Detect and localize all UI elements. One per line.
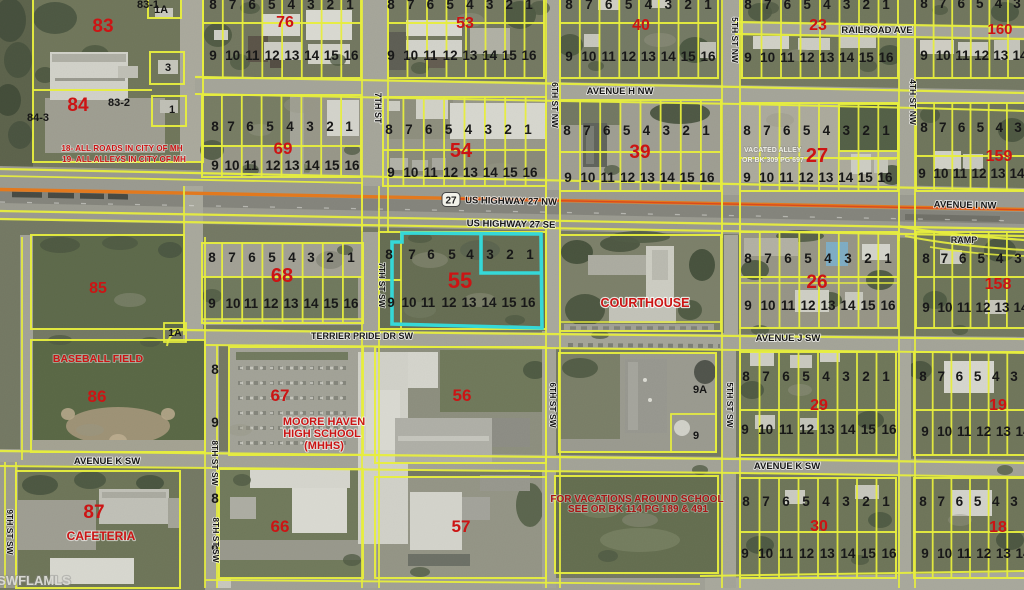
svg-text:910111213141516: 910111213141516 — [741, 546, 897, 561]
svg-text:55: 55 — [448, 268, 472, 293]
svg-text:7TH ST SW: 7TH ST SW — [377, 262, 387, 308]
svg-text:910111213141516: 910111213141516 — [211, 158, 360, 173]
svg-text:1A: 1A — [168, 327, 182, 339]
svg-text:8: 8 — [211, 491, 219, 506]
svg-text:910111213141516: 910111213141516 — [743, 170, 893, 185]
svg-text:84-3: 84-3 — [27, 112, 49, 124]
svg-text:OR BK 309 PG 697: OR BK 309 PG 697 — [742, 157, 804, 164]
svg-text:83-2: 83-2 — [108, 97, 130, 109]
svg-text:83: 83 — [92, 16, 113, 37]
svg-text:68: 68 — [271, 265, 293, 287]
svg-text:4TH ST NW: 4TH ST NW — [908, 79, 918, 126]
svg-text:(MHHS): (MHHS) — [304, 440, 344, 452]
svg-text:AVENUE J SW: AVENUE J SW — [756, 333, 821, 344]
svg-text:910111213141516: 910111213141516 — [209, 48, 359, 63]
svg-text:6TH ST SW: 6TH ST SW — [548, 382, 558, 428]
svg-text:8TH ST SW: 8TH ST SW — [210, 440, 220, 486]
svg-text:VACATED ALLEY: VACATED ALLEY — [744, 147, 802, 154]
svg-text:MOORE HAVEN: MOORE HAVEN — [283, 416, 365, 428]
svg-text:86: 86 — [88, 387, 107, 406]
svg-text:RAMP: RAMP — [951, 235, 978, 245]
svg-text:910111213141516: 910111213141516 — [208, 296, 359, 311]
svg-text:53: 53 — [456, 15, 474, 32]
svg-text:158: 158 — [985, 276, 1012, 293]
svg-text:AVENUE I NW: AVENUE I NW — [934, 199, 997, 211]
svg-text:AVENUE K SW: AVENUE K SW — [74, 456, 140, 467]
svg-text:COURTHOUSE: COURTHOUSE — [601, 296, 690, 310]
svg-text:56: 56 — [453, 386, 472, 405]
svg-text:CAFETERIA: CAFETERIA — [67, 529, 136, 543]
svg-text:TERRIER PRIDE DR SW: TERRIER PRIDE DR SW — [311, 331, 414, 341]
svg-text:9: 9 — [211, 415, 219, 430]
svg-text:39: 39 — [629, 142, 650, 163]
svg-text:84: 84 — [67, 95, 89, 116]
svg-text:159: 159 — [986, 148, 1013, 165]
svg-text:85: 85 — [89, 280, 107, 297]
svg-text:26: 26 — [806, 272, 827, 293]
svg-text:40: 40 — [632, 17, 650, 34]
svg-text:910111213141516: 910111213141516 — [564, 170, 715, 185]
svg-text:910111213141516: 910111213141516 — [387, 165, 538, 180]
svg-text:1A: 1A — [154, 4, 168, 16]
svg-text:23: 23 — [809, 17, 827, 34]
svg-text:76: 76 — [276, 14, 294, 31]
svg-text:9: 9 — [693, 430, 699, 442]
svg-text:57: 57 — [452, 517, 471, 536]
svg-text:18- ALL ROADS IN CITY OF MH: 18- ALL ROADS IN CITY OF MH — [61, 144, 182, 153]
svg-text:66: 66 — [271, 517, 290, 536]
svg-text:6TH ST NW: 6TH ST NW — [550, 82, 560, 129]
svg-text:910111213141516: 910111213141516 — [741, 422, 897, 437]
svg-text:9TH ST SW: 9TH ST SW — [5, 509, 15, 555]
svg-text:3: 3 — [165, 62, 171, 74]
svg-text:5TH ST NW: 5TH ST NW — [730, 17, 740, 64]
svg-text:AVENUE K SW: AVENUE K SW — [754, 461, 820, 472]
svg-text:5TH ST SW: 5TH ST SW — [725, 382, 735, 428]
svg-text:19- ALL ALLEYS IN CITY OF MH: 19- ALL ALLEYS IN CITY OF MH — [62, 155, 186, 164]
svg-text:US HIGHWAY 27 NW: US HIGHWAY 27 NW — [465, 195, 557, 208]
svg-text:27: 27 — [445, 196, 457, 207]
svg-text:7TH ST: 7TH ST — [373, 92, 383, 124]
svg-text:54: 54 — [450, 140, 473, 162]
svg-text:8: 8 — [211, 362, 219, 377]
svg-text:910111213141516: 910111213141516 — [387, 48, 537, 63]
svg-text:AVENUE H NW: AVENUE H NW — [587, 86, 654, 97]
svg-text:30: 30 — [810, 518, 828, 535]
svg-text:RAILROAD AVE: RAILROAD AVE — [841, 25, 912, 36]
svg-text:29: 29 — [810, 397, 828, 414]
svg-text:67: 67 — [271, 386, 290, 405]
svg-text:US HIGHWAY 27 SE: US HIGHWAY 27 SE — [467, 218, 556, 231]
svg-text:910111213141516: 910111213141516 — [744, 50, 894, 65]
svg-text:SEE OR BK 114 PG 189 & 491: SEE OR BK 114 PG 189 & 491 — [568, 504, 709, 515]
svg-text:910111213141516: 910111213141516 — [565, 49, 716, 64]
svg-text:69: 69 — [274, 139, 293, 158]
svg-text:160: 160 — [987, 21, 1012, 38]
svg-text:87: 87 — [83, 502, 104, 523]
svg-text:9A: 9A — [693, 384, 707, 396]
svg-text:SWFLAMLS: SWFLAMLS — [0, 573, 71, 588]
svg-text:8TH ST SW: 8TH ST SW — [211, 517, 221, 563]
svg-text:910111213141516: 910111213141516 — [744, 298, 896, 313]
svg-text:BASEBALL FIELD: BASEBALL FIELD — [53, 353, 144, 365]
svg-text:HIGH SCHOOL: HIGH SCHOOL — [283, 428, 361, 440]
svg-text:19: 19 — [989, 397, 1007, 414]
svg-text:27: 27 — [806, 145, 828, 167]
svg-text:910111213141516: 910111213141516 — [387, 295, 536, 310]
svg-text:1: 1 — [169, 104, 175, 116]
svg-text:18: 18 — [989, 519, 1007, 536]
